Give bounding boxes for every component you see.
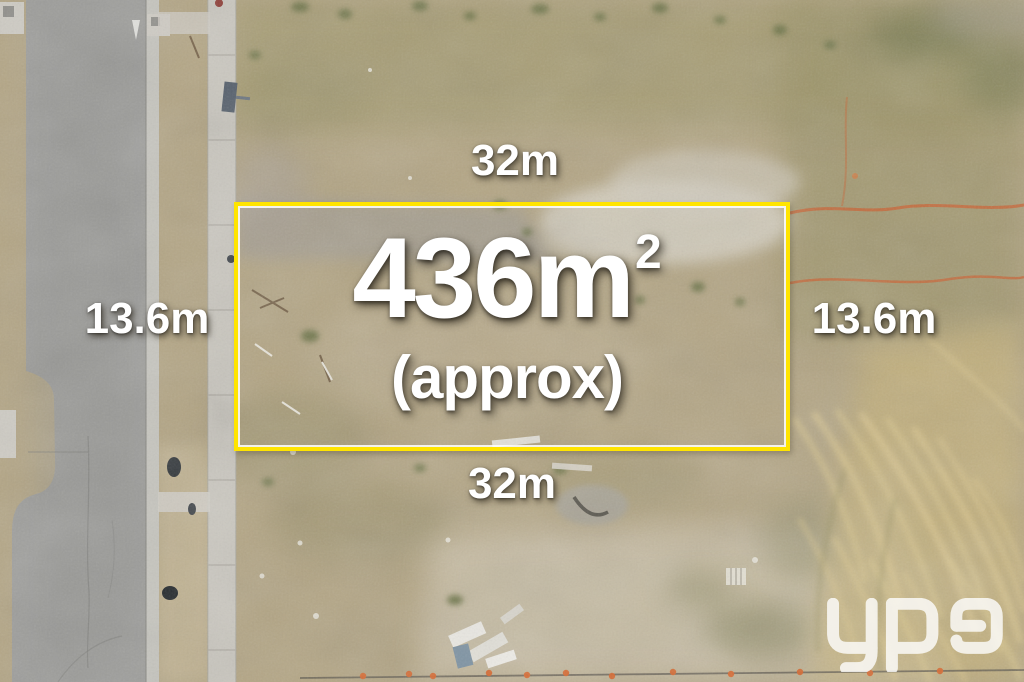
ypa-logo xyxy=(822,598,1006,672)
ypa-logo-letter-p xyxy=(892,604,932,668)
area-annotation: 436m2 (approx) xyxy=(352,222,661,408)
top-width-label: 32m xyxy=(471,139,559,183)
area-value-text: 436m xyxy=(352,215,632,342)
ypa-logo-letter-y xyxy=(833,604,872,668)
ypa-logo-letter-a xyxy=(956,604,996,648)
bottom-width-label: 32m xyxy=(468,462,556,506)
aerial-photo: 32m 32m 13.6m 13.6m 436m2 (approx) xyxy=(0,0,1024,682)
right-depth-label: 13.6m xyxy=(812,297,937,341)
left-depth-label: 13.6m xyxy=(85,297,210,341)
area-value: 436m2 xyxy=(352,222,661,336)
area-exponent: 2 xyxy=(635,226,662,279)
area-qualifier: (approx) xyxy=(352,348,661,408)
